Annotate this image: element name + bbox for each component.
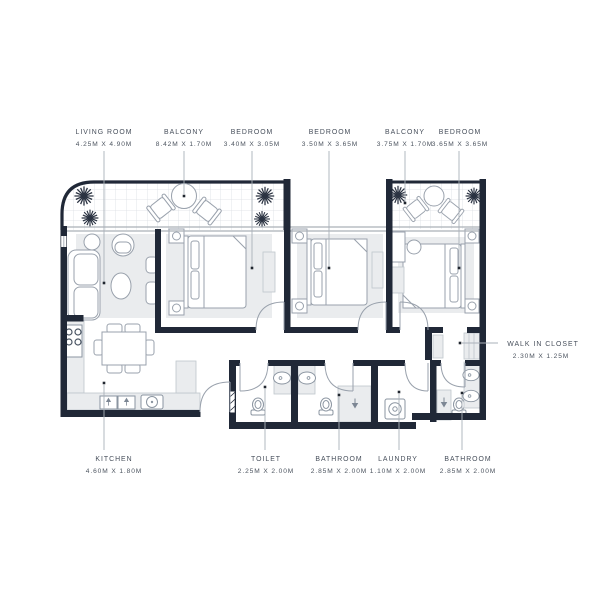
toilet-area [251, 362, 295, 415]
pillow [314, 243, 322, 269]
label-living-room-name: LIVING ROOM [76, 129, 133, 136]
wc-icon [319, 398, 333, 415]
living-room-area [68, 234, 158, 320]
entry-door [200, 382, 230, 412]
label-balcony-2-name: BALCONY [385, 129, 425, 136]
wc-icon [251, 398, 265, 415]
dresser [392, 267, 404, 293]
laundry-area [385, 399, 405, 419]
service-duct [230, 391, 235, 413]
label-bedroom-3-dims: 3.65M X 3.65M [432, 141, 488, 148]
bed-headboard [307, 239, 311, 305]
label-bedroom-3-name: BEDROOM [439, 129, 482, 136]
tall-unit [176, 361, 196, 393]
pillow [450, 248, 458, 274]
label-bathroom-1-name: BATHROOM [315, 456, 362, 463]
label-toilet-name: TOILET [251, 456, 281, 463]
label-toilet-dims: 2.25M X 2.00M [238, 468, 294, 475]
label-balcony-1-dims: 8.42M X 1.70M [156, 141, 212, 148]
label-laundry-dims: 1.10M X 2.00M [370, 468, 426, 475]
closet-shelf [433, 335, 443, 358]
label-bedroom-1-name: BEDROOM [231, 129, 274, 136]
coffee-table [111, 273, 131, 299]
bedroom-1-area [166, 229, 275, 318]
walk-in-closet-area [433, 333, 480, 359]
dining-table [102, 332, 146, 365]
pillow [191, 241, 199, 269]
wardrobe [464, 333, 480, 359]
plant-icon [82, 210, 99, 227]
laundry-door [405, 363, 428, 391]
floor-plan-drawing: LIVING ROOM 4.25M X 4.90M BALCONY 8.42M … [0, 0, 600, 600]
label-bathroom-1-dims: 2.85M X 2.00M [311, 468, 367, 475]
bathroom-1-area [295, 362, 372, 422]
bedroom-3-area [392, 229, 479, 313]
label-living-room-dims: 4.25M X 4.90M [76, 141, 132, 148]
desk-chair [407, 240, 421, 254]
label-bedroom-1-dims: 3.40M X 3.05M [224, 141, 280, 148]
dresser [372, 252, 383, 288]
bathroom-2-door [441, 363, 465, 387]
label-bedroom-2-dims: 3.50M X 3.65M [302, 141, 358, 148]
label-kitchen-name: KITCHEN [95, 456, 132, 463]
bedroom-2-area [292, 229, 383, 318]
label-laundry-name: LAUNDRY [378, 456, 418, 463]
pillow [314, 271, 322, 297]
pillow [191, 271, 199, 299]
bathroom-2-area [437, 362, 483, 420]
balcony-2-area [386, 182, 484, 229]
desk [392, 232, 405, 262]
label-bedroom-2-name: BEDROOM [309, 129, 352, 136]
label-bathroom-2-name: BATHROOM [444, 456, 491, 463]
pillow [450, 276, 458, 302]
balcony-table [424, 186, 444, 206]
label-walk-in-closet-name: WALK IN CLOSET [507, 341, 579, 348]
label-bathroom-2-dims: 2.85M X 2.00M [440, 468, 496, 475]
bed-headboard [184, 236, 188, 308]
label-balcony-2-dims: 3.75M X 1.70M [377, 141, 433, 148]
balcony-1-area [62, 182, 287, 230]
floor-plan: LIVING ROOM 4.25M X 4.90M BALCONY 8.42M … [0, 0, 600, 600]
label-balcony-1-name: BALCONY [164, 129, 204, 136]
label-walk-in-closet-dims: 2.30M X 1.25M [513, 353, 569, 360]
side-table [84, 234, 100, 250]
dresser [263, 252, 275, 292]
bed-headboard [461, 244, 465, 308]
label-kitchen-dims: 4.60M X 1.80M [86, 468, 142, 475]
dining-area [94, 324, 154, 373]
